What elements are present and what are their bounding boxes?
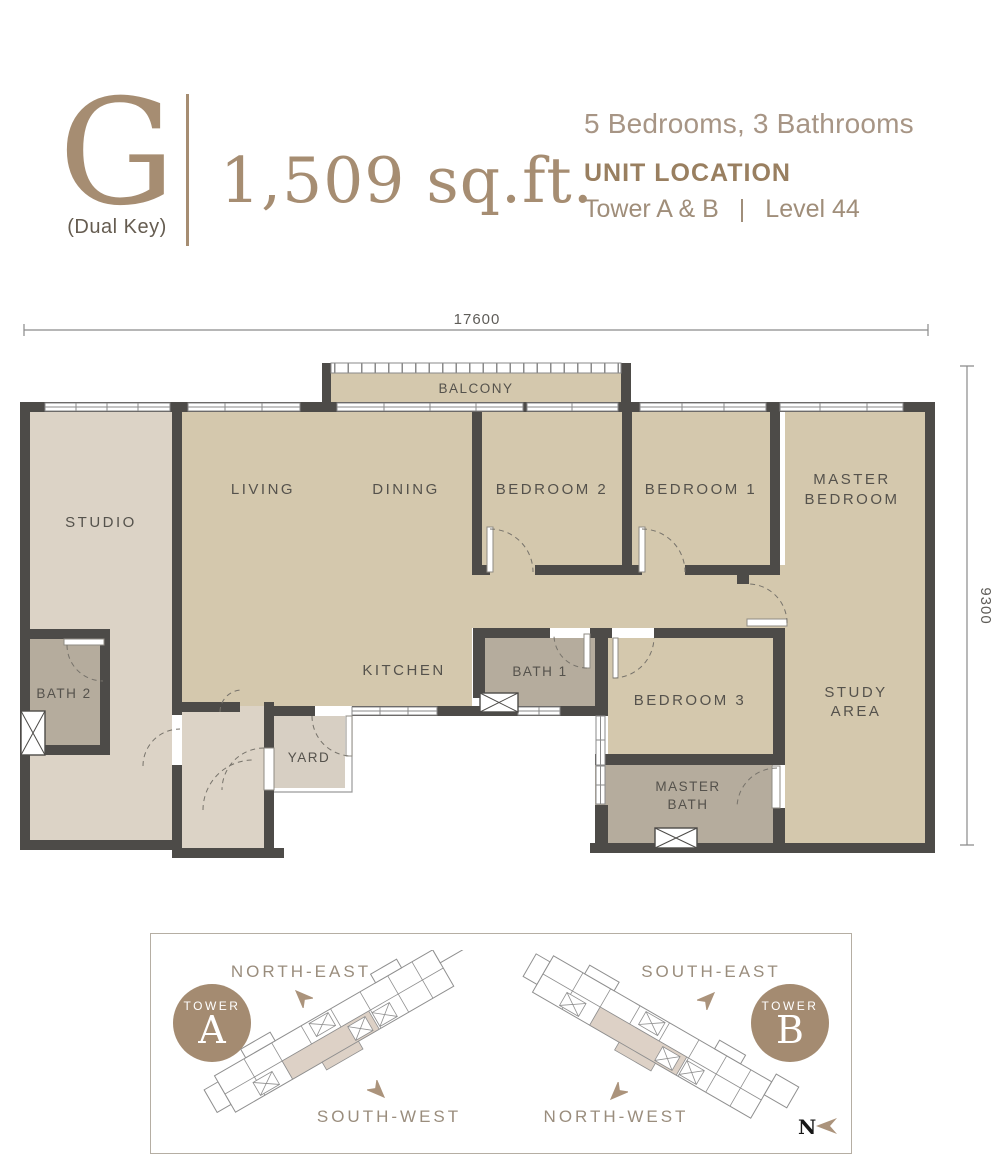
unit-type-block: G (Dual Key) — [52, 80, 182, 239]
window-master-bath-side — [596, 766, 605, 804]
width-dimension-label: 17600 — [454, 311, 501, 328]
window-studio — [45, 403, 170, 411]
compass-north-label: N — [798, 1115, 816, 1139]
ac-ledge-bath2 — [21, 711, 45, 755]
room-label-dining: DINING — [372, 481, 440, 498]
window-living — [188, 403, 300, 411]
depth-dimension-line — [960, 366, 974, 845]
room-label-master-bedroom-2: BEDROOM — [804, 491, 899, 508]
entrance-door-leaf — [264, 748, 274, 790]
tower-b-direction-bottom: NORTH-WEST — [516, 1107, 716, 1127]
ac-ledge-bath1 — [480, 693, 518, 712]
floor-plan-brochure: G (Dual Key) 1,509 sq.ft. 5 Bedrooms, 3 … — [0, 0, 1000, 1174]
room-label-yard: YARD — [288, 750, 331, 765]
window-bedroom2 — [527, 403, 618, 411]
yard-door-leaf — [346, 716, 352, 756]
balcony-railing — [331, 363, 621, 373]
room-label-studio: STUDIO — [65, 514, 137, 531]
bedroom2-door-leaf — [487, 527, 493, 572]
ac-ledge-master-bath — [655, 828, 697, 848]
towers-text: Tower A & B — [584, 195, 719, 223]
room-label-balcony: BALCONY — [438, 381, 513, 396]
room-label-bath1: BATH 1 — [512, 664, 567, 679]
unit-location-title: UNIT LOCATION — [584, 159, 984, 188]
room-label-living: LIVING — [231, 481, 295, 498]
room-label-study-2: AREA — [831, 703, 882, 720]
bedroom3-door-leaf — [613, 638, 618, 678]
window-bath1 — [518, 707, 560, 715]
room-label-master-bath-2: BATH — [667, 797, 708, 812]
studio-floor — [30, 412, 172, 840]
room-label-study-1: STUDY — [824, 684, 887, 701]
bath1-door-leaf — [584, 634, 590, 668]
south-west-arrow-icon — [367, 1080, 389, 1102]
header-info: 5 Bedrooms, 3 Bathrooms UNIT LOCATION To… — [584, 108, 984, 224]
unit-area: 1,509 sq.ft. — [220, 144, 594, 217]
tower-a-floorplate-diagram — [199, 950, 499, 1132]
tower-level-separator: | — [739, 195, 746, 223]
room-label-bedroom2: BEDROOM 2 — [496, 481, 609, 498]
header-divider — [186, 94, 189, 246]
room-label-bath2: BATH 2 — [36, 686, 91, 701]
compass-north-arrow-icon — [815, 1114, 839, 1138]
room-label-master-bedroom-1: MASTER — [813, 471, 891, 488]
bed-bath-count: 5 Bedrooms, 3 Bathrooms — [584, 108, 984, 140]
window-master-bedroom — [780, 403, 903, 411]
foyer-floor — [182, 702, 264, 848]
bedroom1-door-leaf — [639, 527, 645, 572]
depth-dimension-label: 9300 — [977, 587, 994, 624]
tower-level-line: Tower A & B|Level 44 — [584, 195, 984, 224]
unit-letter: G — [52, 80, 182, 226]
tower-b-floorplate-diagram — [503, 950, 803, 1132]
bath2-door-leaf — [64, 639, 104, 645]
master-bath-door-leaf — [772, 766, 780, 808]
tower-a-direction-bottom: SOUTH-WEST — [289, 1107, 489, 1127]
unit-location-panel: NORTH-EAST TOWER A — [150, 933, 852, 1154]
window-bedroom1 — [640, 403, 766, 411]
north-west-arrow-icon — [606, 1082, 628, 1104]
floor-plan-drawing: 17600 9300 BALCONY STUDIO LIVING DINING … — [0, 300, 1000, 890]
window-balcony-door — [337, 403, 523, 411]
room-label-bedroom3: BEDROOM 3 — [634, 692, 747, 709]
room-label-kitchen: KITCHEN — [362, 662, 445, 679]
master-bedroom-door-leaf — [747, 619, 787, 626]
level-text: Level 44 — [765, 195, 860, 223]
window-bedroom3-side — [596, 716, 605, 765]
room-label-bedroom1: BEDROOM 1 — [645, 481, 758, 498]
window-kitchen — [352, 707, 437, 715]
room-label-master-bath-1: MASTER — [655, 779, 720, 794]
unit-subtitle: (Dual Key) — [52, 216, 182, 239]
